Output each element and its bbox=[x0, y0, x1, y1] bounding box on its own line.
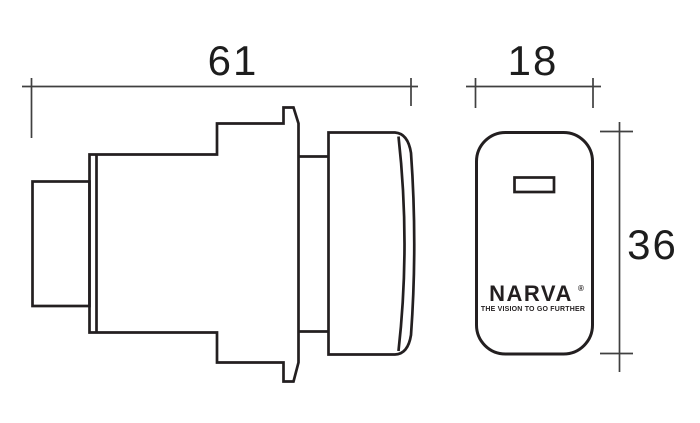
switch-face-outline bbox=[477, 133, 593, 355]
dimension-front-height-36: 36 bbox=[600, 122, 678, 372]
technical-drawing-canvas: NARVA ® THE VISION TO GO FURTHER 61 18 3… bbox=[0, 0, 700, 423]
switch-housing-outline bbox=[90, 108, 299, 382]
terminal-block-outline bbox=[33, 182, 90, 307]
registered-trademark-mark: ® bbox=[578, 284, 584, 293]
dimension-label-front-width: 18 bbox=[508, 37, 559, 84]
side-view-drawing bbox=[33, 108, 415, 382]
dimension-label-side-width: 61 bbox=[208, 37, 259, 84]
switch-dimension-drawing: NARVA ® THE VISION TO GO FURTHER 61 18 3… bbox=[0, 0, 700, 423]
front-view-drawing: NARVA ® THE VISION TO GO FURTHER bbox=[477, 133, 593, 355]
narva-tagline: THE VISION TO GO FURTHER bbox=[481, 306, 585, 313]
dimension-label-front-height: 36 bbox=[627, 221, 678, 268]
indicator-window bbox=[515, 178, 555, 193]
dimension-front-width-18: 18 bbox=[466, 37, 601, 108]
narva-logo: NARVA bbox=[489, 281, 573, 306]
actuator-face-curve bbox=[399, 137, 405, 352]
